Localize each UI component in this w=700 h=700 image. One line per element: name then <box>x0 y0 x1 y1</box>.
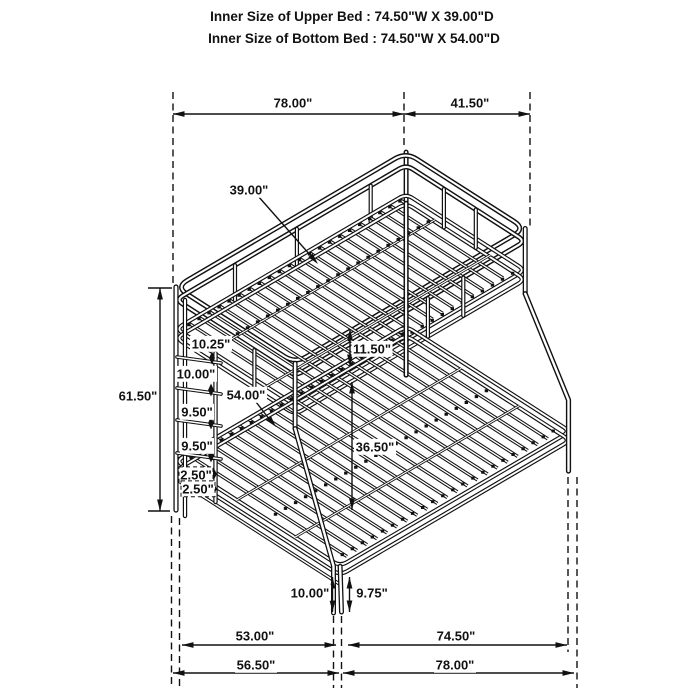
svg-text:Inner Size of Upper Bed : 74.5: Inner Size of Upper Bed : 74.50"W X 39.0… <box>210 9 494 24</box>
svg-text:36.50": 36.50" <box>356 440 395 455</box>
svg-text:9.50": 9.50" <box>181 405 212 420</box>
svg-text:Inner Size of Bottom Bed : 74.: Inner Size of Bottom Bed : 74.50"W X 54.… <box>208 31 500 46</box>
svg-text:10.25": 10.25" <box>192 337 231 352</box>
svg-text:78.00": 78.00" <box>274 96 313 111</box>
svg-text:10.00": 10.00" <box>291 586 330 601</box>
svg-text:53.00": 53.00" <box>236 629 275 644</box>
svg-text:39.00": 39.00" <box>230 183 269 198</box>
svg-text:9.75": 9.75" <box>356 586 387 601</box>
svg-text:41.50": 41.50" <box>451 96 490 111</box>
svg-text:2.50": 2.50" <box>182 482 213 497</box>
svg-text:9.50": 9.50" <box>181 439 212 454</box>
svg-text:61.50": 61.50" <box>119 389 158 404</box>
svg-text:10.00": 10.00" <box>177 367 216 382</box>
svg-text:56.50": 56.50" <box>237 658 276 673</box>
svg-text:78.00": 78.00" <box>436 658 475 673</box>
svg-text:74.50": 74.50" <box>437 629 476 644</box>
svg-text:11.50": 11.50" <box>353 342 391 357</box>
svg-text:54.00": 54.00" <box>227 388 266 403</box>
